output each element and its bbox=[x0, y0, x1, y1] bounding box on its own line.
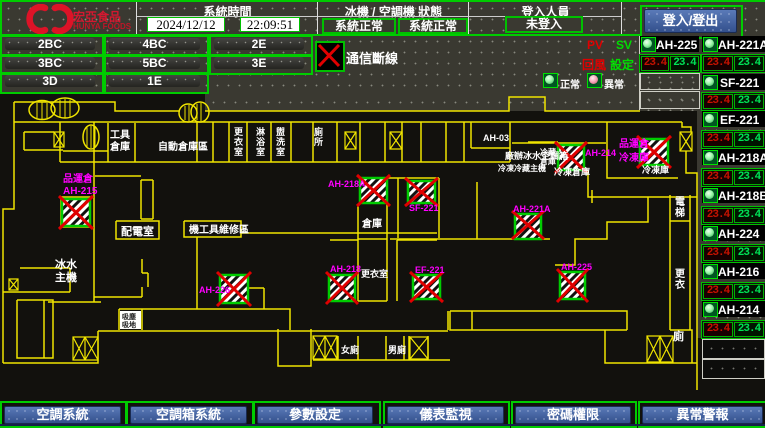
svg-text:冷凍庫: 冷凍庫 bbox=[642, 164, 669, 175]
svg-text:女廁: 女廁 bbox=[341, 344, 359, 355]
svg-text:AH-226: AH-226 bbox=[199, 285, 230, 295]
svg-text:AH-221A: AH-221A bbox=[513, 204, 551, 214]
svg-text:工具: 工具 bbox=[110, 129, 130, 141]
svg-text:AH-215: AH-215 bbox=[63, 186, 98, 197]
svg-text:吸塵: 吸塵 bbox=[122, 312, 136, 321]
svg-text:更衣室: 更衣室 bbox=[361, 268, 388, 279]
svg-text:冷藏: 冷藏 bbox=[540, 147, 556, 157]
svg-text:EF-221: EF-221 bbox=[415, 265, 445, 275]
svg-text:倉庫: 倉庫 bbox=[109, 140, 130, 153]
svg-text:冷凍庫: 冷凍庫 bbox=[619, 151, 649, 164]
svg-text:廁所: 廁所 bbox=[314, 126, 323, 147]
svg-text:冷凍倉庫: 冷凍倉庫 bbox=[554, 166, 590, 177]
svg-text:廁: 廁 bbox=[673, 329, 684, 343]
svg-text:冰水: 冰水 bbox=[55, 257, 78, 271]
svg-text:品運倉: 品運倉 bbox=[63, 172, 94, 185]
svg-text:盥洗室: 盥洗室 bbox=[276, 126, 285, 157]
svg-text:AH-214: AH-214 bbox=[585, 148, 616, 158]
svg-text:電梯: 電梯 bbox=[675, 196, 685, 219]
svg-text:更衣室: 更衣室 bbox=[234, 127, 244, 157]
svg-text:AH-03: AH-03 bbox=[483, 133, 509, 143]
svg-text:AH-218: AH-218 bbox=[330, 264, 361, 274]
svg-text:冷凍冷藏主機: 冷凍冷藏主機 bbox=[498, 163, 546, 173]
svg-text:機工具維修區: 機工具維修區 bbox=[189, 223, 249, 236]
svg-text:AH-225: AH-225 bbox=[561, 262, 592, 272]
svg-text:品運倉: 品運倉 bbox=[619, 137, 650, 150]
svg-text:配電室: 配電室 bbox=[121, 224, 154, 238]
svg-text:主機: 主機 bbox=[55, 270, 77, 284]
svg-text:自動倉庫區: 自動倉庫區 bbox=[158, 140, 208, 153]
svg-text:更衣: 更衣 bbox=[675, 268, 686, 291]
svg-text:廠辦冰水空調箱: 廠辦冰水空調箱 bbox=[505, 150, 568, 161]
svg-text:SF-221: SF-221 bbox=[409, 203, 439, 213]
svg-text:倉庫: 倉庫 bbox=[361, 217, 382, 230]
svg-text:男廁: 男廁 bbox=[388, 344, 406, 355]
svg-text:AH-218A: AH-218A bbox=[328, 179, 366, 189]
svg-text:倉庫: 倉庫 bbox=[539, 156, 556, 166]
svg-text:吸地: 吸地 bbox=[122, 320, 136, 329]
svg-text:淋浴室: 淋浴室 bbox=[256, 126, 266, 157]
